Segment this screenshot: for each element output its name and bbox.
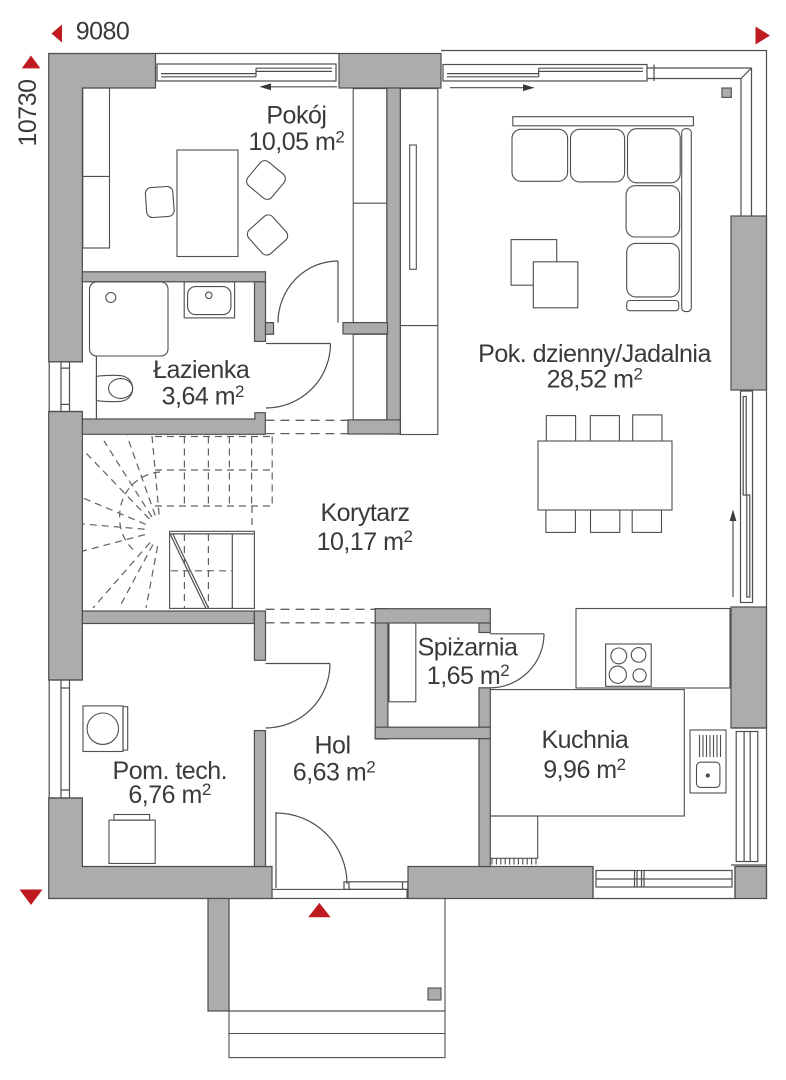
svg-text:28,52 m2: 28,52 m2 xyxy=(547,365,643,394)
svg-text:10,05 m2: 10,05 m2 xyxy=(248,127,344,156)
svg-text:3,64 m2: 3,64 m2 xyxy=(162,382,244,411)
svg-text:10,17 m2: 10,17 m2 xyxy=(317,527,413,556)
svg-text:9080: 9080 xyxy=(76,18,130,46)
svg-text:Hol: Hol xyxy=(314,731,350,759)
svg-text:6,76 m2: 6,76 m2 xyxy=(128,780,210,809)
svg-text:Łazienka: Łazienka xyxy=(153,356,250,384)
svg-text:9,96 m2: 9,96 m2 xyxy=(543,755,625,784)
svg-text:1,65 m2: 1,65 m2 xyxy=(427,661,509,690)
svg-text:Korytarz: Korytarz xyxy=(320,499,409,527)
svg-text:Pok. dzienny/Jadalnia: Pok. dzienny/Jadalnia xyxy=(478,340,711,368)
svg-text:Spiżarnia: Spiżarnia xyxy=(418,634,518,662)
svg-text:6,63 m2: 6,63 m2 xyxy=(293,758,375,787)
svg-text:Kuchnia: Kuchnia xyxy=(541,726,628,754)
svg-text:Pokój: Pokój xyxy=(266,102,326,130)
svg-text:10730: 10730 xyxy=(14,79,42,146)
